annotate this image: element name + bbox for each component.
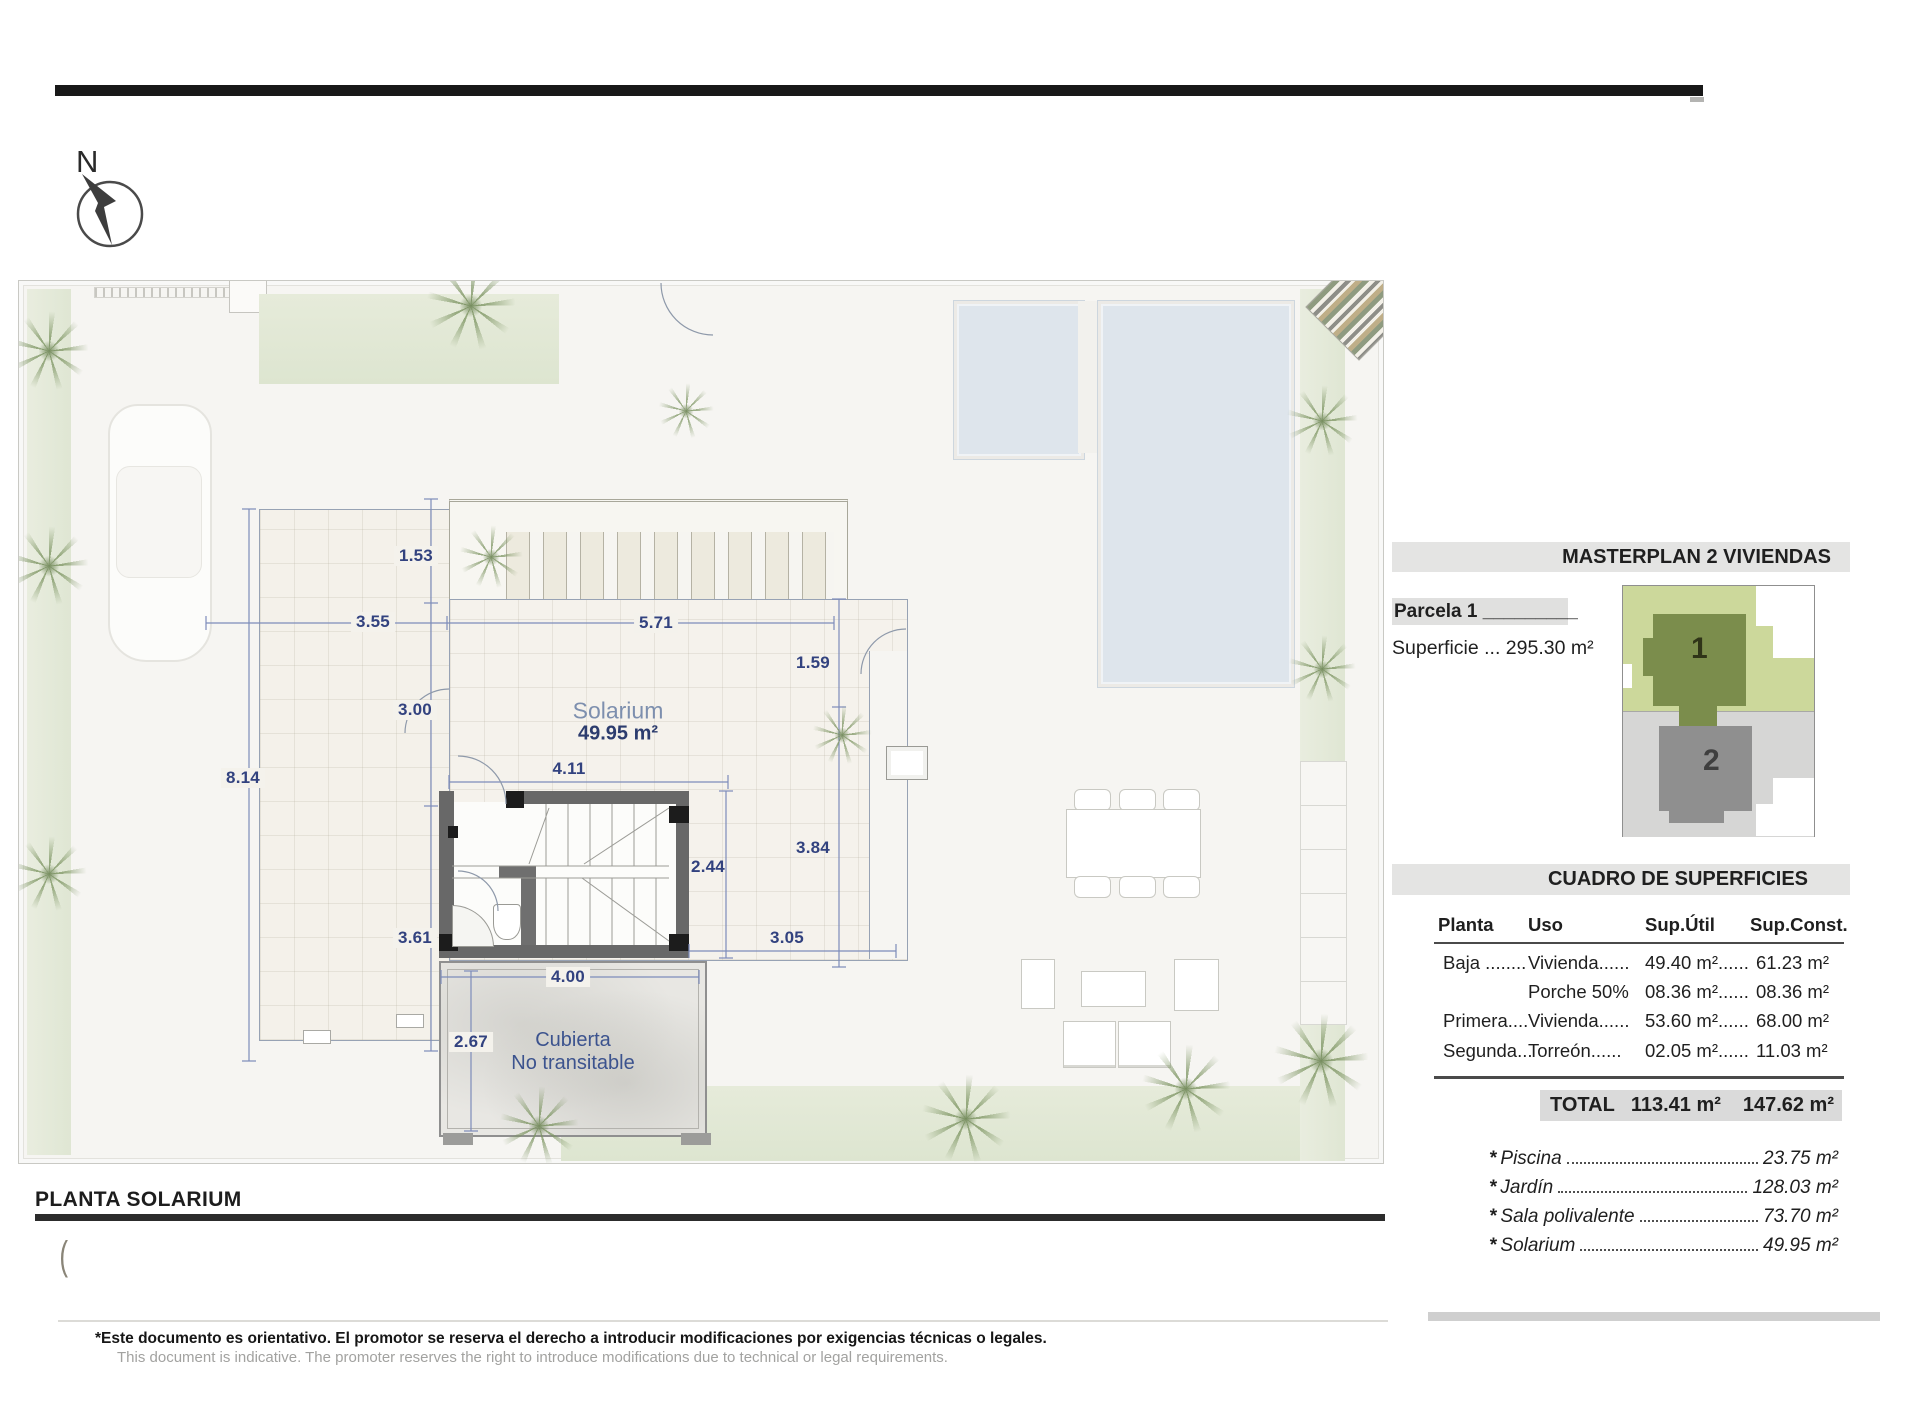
dim-3-05: 3.05	[770, 928, 804, 948]
col-header-sup-const: Sup.Const.	[1750, 914, 1848, 936]
table-row-uso: Torreón......	[1528, 1040, 1622, 1062]
dotted-leader	[1640, 1220, 1758, 1222]
list-item: * Piscina 23.75 m²	[1489, 1148, 1838, 1177]
masterplan-title: MASTERPLAN 2 VIVIENDAS	[1562, 546, 1850, 568]
table-row-const: 08.36 m²	[1756, 981, 1829, 1003]
dim-3-55: 3.55	[351, 612, 395, 632]
solarium-label: Solarium	[573, 698, 664, 725]
extra-label: Solarium	[1500, 1235, 1575, 1257]
palm-tree	[499, 1086, 579, 1164]
table-row-util: 53.60 m²......	[1645, 1010, 1749, 1032]
dim-3-84: 3.84	[796, 838, 830, 858]
table-row-util: 49.40 m²......	[1645, 952, 1749, 974]
floor-plan-sheet: N	[0, 0, 1920, 1406]
dim-3-61: 3.61	[393, 928, 437, 948]
site-plan: Cubierta No transitable	[18, 280, 1384, 1164]
dim-1-59: 1.59	[796, 653, 830, 673]
dim-2-44: 2.44	[691, 857, 725, 877]
table-header-rule	[1434, 942, 1844, 944]
plan-title: PLANTA SOLARIUM	[35, 1188, 242, 1212]
palm-tree	[921, 1074, 1011, 1164]
minimap-house-1-number: 1	[1691, 632, 1708, 666]
palm-tree	[1288, 635, 1356, 703]
superficie-value: Superficie ... 295.30 m²	[1392, 637, 1594, 660]
total-band: TOTAL 113.41 m² 147.62 m²	[1540, 1090, 1842, 1121]
dim-3-00: 3.00	[393, 700, 437, 720]
extra-value: 49.95 m²	[1763, 1235, 1838, 1257]
total-const: 147.62 m²	[1743, 1094, 1842, 1117]
extras-list: * Piscina 23.75 m² * Jardín 128.03 m² * …	[1489, 1148, 1838, 1264]
cuadro-title: CUADRO DE SUPERFICIES	[1548, 868, 1850, 890]
top-rule	[55, 85, 1703, 96]
total-util: 113.41 m²	[1615, 1094, 1721, 1117]
extra-value: 73.70 m²	[1763, 1206, 1838, 1228]
palm-tree	[812, 705, 872, 765]
list-item: * Solarium 49.95 m²	[1489, 1235, 1838, 1264]
stray-bracket: (	[59, 1234, 68, 1279]
extra-star: *	[1489, 1148, 1496, 1170]
table-row-uso: Vivienda......	[1528, 1010, 1629, 1032]
palm-tree	[1141, 1044, 1231, 1134]
plan-title-rule	[35, 1214, 1385, 1221]
table-row-uso: Vivienda......	[1528, 952, 1629, 974]
table-row-util: 08.36 m²......	[1645, 981, 1749, 1003]
extra-value: 128.03 m²	[1752, 1177, 1838, 1199]
dim-8-14: 8.14	[221, 768, 265, 788]
extra-label: Piscina	[1500, 1148, 1561, 1170]
minimap-house-1-bump	[1643, 638, 1653, 676]
palm-tree	[1273, 1013, 1369, 1109]
compass-icon	[58, 170, 168, 262]
masterplan-title-band: MASTERPLAN 2 VIVIENDAS	[1392, 542, 1850, 572]
extra-value: 23.75 m²	[1763, 1148, 1838, 1170]
disclaimer-line-en: This document is indicative. The promote…	[117, 1349, 948, 1366]
parcela-band: Parcela 1 _________	[1392, 598, 1568, 625]
dotted-leader	[1580, 1249, 1758, 1251]
dotted-leader	[1558, 1191, 1747, 1193]
top-rule-mark	[1690, 97, 1704, 102]
parcela-label: Parcela 1	[1392, 601, 1477, 622]
table-row-const: 61.23 m²	[1756, 952, 1829, 974]
dim-4-00: 4.00	[546, 967, 590, 987]
minimap-notch	[1773, 778, 1814, 836]
extra-star: *	[1489, 1177, 1496, 1199]
palm-tree	[1286, 385, 1358, 457]
table-row-planta: Primera....	[1443, 1010, 1528, 1032]
dim-5-71: 5.71	[634, 613, 678, 633]
footer-divider	[58, 1320, 1388, 1322]
minimap-notch	[1756, 586, 1773, 626]
table-row-util: 02.05 m²......	[1645, 1040, 1749, 1062]
minimap-notch	[1773, 586, 1814, 658]
palm-tree	[459, 525, 523, 589]
extra-star: *	[1489, 1206, 1496, 1228]
table-row-const: 68.00 m²	[1756, 1010, 1829, 1032]
list-item: * Jardín 128.03 m²	[1489, 1177, 1838, 1206]
footer-divider-bar	[1428, 1312, 1880, 1321]
minimap-notch	[1756, 804, 1773, 836]
col-header-sup-util: Sup.Útil	[1645, 914, 1715, 936]
table-row-const: 11.03 m²	[1756, 1040, 1828, 1062]
table-bottom-rule	[1434, 1076, 1844, 1079]
col-header-planta: Planta	[1438, 914, 1494, 936]
palm-tree	[658, 383, 714, 439]
disclaimer-line-es: *Este documento es orientativo. El promo…	[95, 1330, 1047, 1348]
masterplan-minimap: 1 2	[1622, 585, 1815, 837]
list-item: * Sala polivalente 73.70 m²	[1489, 1206, 1838, 1235]
extra-star: *	[1489, 1235, 1496, 1257]
minimap-notch	[1623, 664, 1632, 688]
table-row-planta: Segunda...	[1443, 1040, 1533, 1062]
extra-label: Jardín	[1500, 1177, 1553, 1199]
total-label: TOTAL	[1540, 1094, 1615, 1117]
col-header-uso: Uso	[1528, 914, 1563, 936]
table-row-planta: Baja ........	[1443, 952, 1526, 974]
cuadro-title-band: CUADRO DE SUPERFICIES	[1392, 864, 1850, 895]
dim-2-67: 2.67	[449, 1032, 493, 1052]
dim-1-53: 1.53	[394, 546, 438, 566]
dotted-leader	[1567, 1162, 1758, 1164]
minimap-house-2-step	[1669, 811, 1724, 823]
parcela-underscore-line: _________	[1483, 601, 1578, 622]
dim-4-11: 4.11	[553, 759, 586, 779]
solarium-area: 49.95 m²	[578, 723, 658, 746]
table-row-uso: Porche 50%	[1528, 981, 1629, 1003]
minimap-house-2-number: 2	[1703, 744, 1720, 778]
extra-label: Sala polivalente	[1500, 1206, 1634, 1228]
